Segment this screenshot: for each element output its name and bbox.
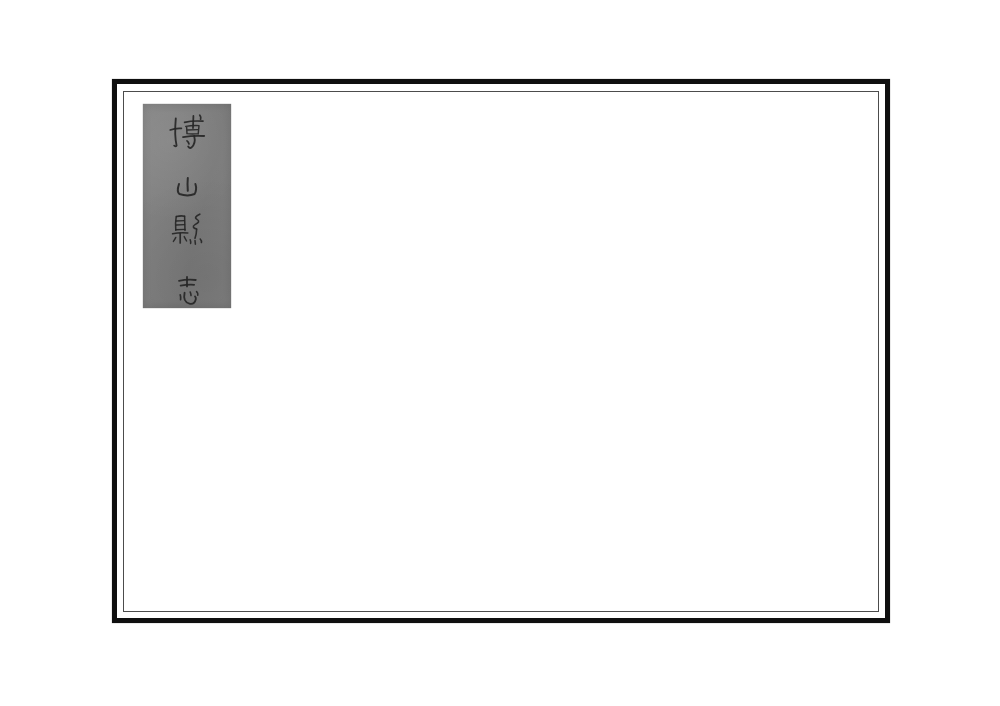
calligraphy-glyph-bo [166,112,208,152]
title-text: 博山縣志 [143,104,144,105]
calligraphy-glyph-zhi [166,272,208,312]
inner-border-frame [123,91,879,612]
title-character-xian: 縣 [166,211,208,251]
scanned-page: 博山縣志 博 山 縣 [0,0,1000,706]
calligraphy-glyph-shan [166,168,208,208]
calligraphy-glyph-xian [166,211,208,251]
title-character-bo: 博 [166,112,208,152]
title-label: 博山縣志 博 山 縣 [143,104,231,308]
title-character-shan: 山 [166,168,208,208]
title-character-zhi: 志 [166,272,208,312]
